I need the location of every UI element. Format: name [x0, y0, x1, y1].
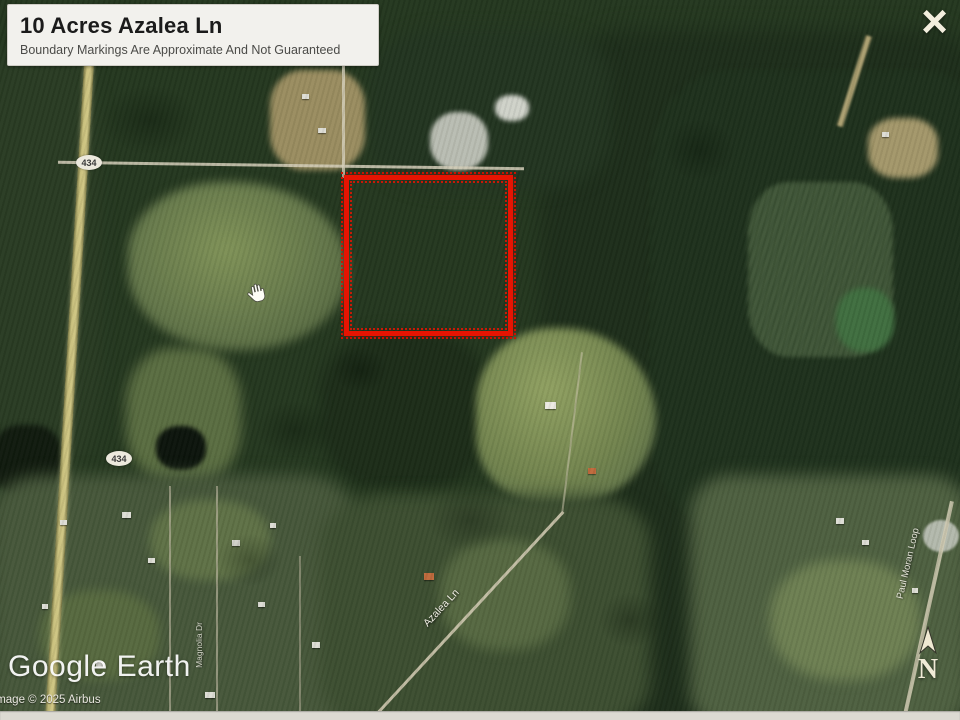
building [270, 523, 276, 528]
road-shield-434-upper: 434 [76, 155, 102, 170]
terrain-lawn-patch-4 [770, 560, 920, 680]
terrain-forest-bottom-mid [320, 495, 650, 720]
building [318, 128, 326, 133]
property-boundary-outline [344, 175, 513, 336]
building [588, 468, 596, 474]
azalea-ln-road-north [561, 352, 583, 515]
building [205, 692, 215, 698]
building [302, 94, 309, 99]
boundary-disclaimer: Boundary Markings Are Approximate And No… [20, 43, 366, 57]
terrain-forest-left [0, 50, 100, 470]
hand-cursor-icon [243, 279, 270, 306]
terrain-pasture-west [126, 348, 241, 483]
building [545, 402, 556, 409]
terrain-homestead-clearing [476, 328, 656, 503]
terrain-pasture-main [128, 182, 348, 350]
north-indicator: N [905, 626, 951, 682]
terrain-pine-plantation [650, 70, 960, 530]
building [912, 588, 918, 593]
imagery-copyright: Image © 2025 Airbus [0, 694, 101, 706]
building [258, 602, 265, 607]
residential-street-2 [216, 486, 218, 720]
street-label-magnolia: Magnolia Dr [194, 622, 204, 668]
terrain-clearing-top-right [868, 118, 938, 178]
terrain-clearing-top [270, 70, 365, 170]
street-label-azalea-ln: Azalea Ln [421, 587, 462, 629]
building [424, 573, 434, 580]
terrain-sand-pond [430, 112, 488, 170]
trail-top-right [837, 35, 872, 127]
building [862, 540, 869, 545]
terrain-lawn-patch-1 [150, 500, 270, 580]
close-icon: × [921, 0, 948, 47]
tree-canopy-texture [0, 0, 960, 720]
terrain-pond-bottom-right [923, 520, 959, 552]
terrain-sand-patch [495, 95, 529, 121]
building [60, 520, 67, 525]
building [122, 512, 131, 518]
google-earth-watermark: Google Earth [8, 650, 191, 684]
azalea-ln-road [367, 511, 565, 720]
residential-street-3 [299, 556, 301, 720]
dirt-road-horizontal [58, 161, 524, 171]
terrain-dark-grove [0, 425, 62, 495]
listing-info-card: 10 Acres Azalea Ln Boundary Markings Are… [7, 4, 379, 66]
terrain-clearcut-patch [836, 288, 894, 352]
building [312, 642, 320, 648]
terrain-forest-top [370, 30, 610, 190]
terrain-forest-right [540, 30, 960, 720]
road-shield-434-lower: 434 [106, 451, 132, 466]
listing-title: 10 Acres Azalea Ln [20, 14, 366, 38]
building [232, 540, 240, 546]
bottom-edge-strip [0, 711, 960, 720]
building [42, 604, 48, 609]
dirt-road-vertical [342, 54, 345, 178]
terrain-forest-mid [320, 330, 490, 490]
building [882, 132, 889, 137]
road-shield-label: 434 [111, 454, 126, 464]
terrain-pine-rows-light [748, 182, 893, 357]
north-letter: N [905, 657, 951, 682]
terrain-pond-dark [156, 426, 206, 470]
vignette-overlay [0, 0, 960, 720]
building [148, 558, 155, 563]
residential-street-1 [169, 486, 171, 720]
close-button[interactable]: × [917, 0, 952, 48]
road-shield-label: 434 [81, 158, 96, 168]
satellite-map-view[interactable]: 434 434 Azalea Ln Paul Moran Loop Magnol… [0, 0, 960, 720]
building [836, 518, 844, 524]
north-arrow-icon [916, 626, 940, 656]
